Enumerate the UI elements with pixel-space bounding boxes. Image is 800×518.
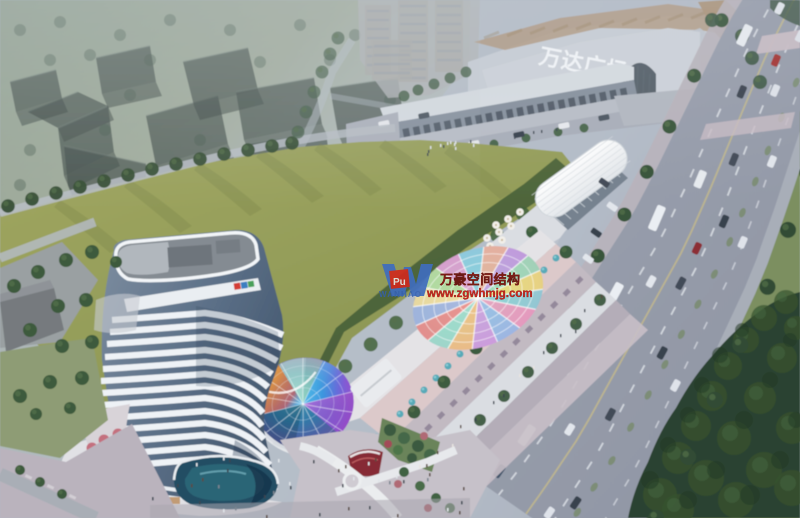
svg-text:万豪空间结构: 万豪空间结构 xyxy=(439,272,520,287)
svg-text:www.zgwhmjg.com: www.zgwhmjg.com xyxy=(426,288,533,300)
svg-text:Pu: Pu xyxy=(393,277,406,288)
svg-text:WANHAO: WANHAO xyxy=(379,290,422,299)
